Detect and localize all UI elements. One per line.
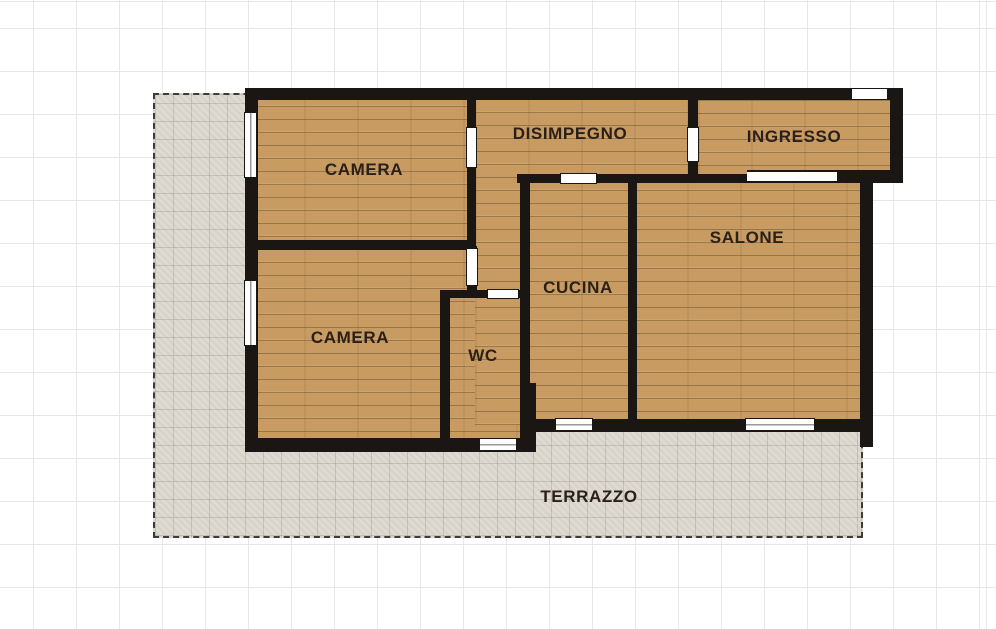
wall-right-ingresso (890, 88, 903, 183)
window-camera2-icon (244, 280, 257, 346)
wall-between-cameras (251, 240, 476, 250)
door-entry-icon (851, 88, 888, 100)
window-cucina-icon (555, 418, 593, 431)
wall-top (245, 88, 903, 100)
room-label-wc: WC (468, 346, 498, 366)
room-label-camera-2: CAMERA (311, 328, 389, 348)
window-wc-icon (479, 438, 517, 451)
room-label-cucina: CUCINA (543, 278, 613, 298)
door-camera2-icon (466, 248, 478, 286)
wall-right-salone (860, 172, 873, 447)
room-label-ingresso: INGRESSO (747, 127, 842, 147)
opening-ingresso-salone-icon (747, 170, 837, 183)
window-salone-icon (745, 418, 815, 431)
door-cucina-icon (560, 173, 597, 184)
door-camera1-icon (466, 127, 477, 168)
room-label-salone: SALONE (710, 228, 784, 248)
wall-camera1-right (467, 94, 476, 246)
door-wc-icon (487, 289, 519, 299)
room-label-terrazzo: TERRAZZO (540, 487, 637, 507)
room-label-disimpegno: DISIMPEGNO (513, 124, 628, 144)
floor-plan-canvas: CAMERA CAMERA DISIMPEGNO INGRESSO SALONE… (0, 0, 996, 629)
window-camera1-icon (244, 112, 257, 178)
wall-cucina-salone (628, 180, 637, 419)
door-disimpegno-ingresso-icon (687, 127, 699, 162)
room-label-camera-1: CAMERA (325, 160, 403, 180)
wall-wc-left (440, 292, 450, 452)
wall-cucina-left (520, 176, 530, 419)
